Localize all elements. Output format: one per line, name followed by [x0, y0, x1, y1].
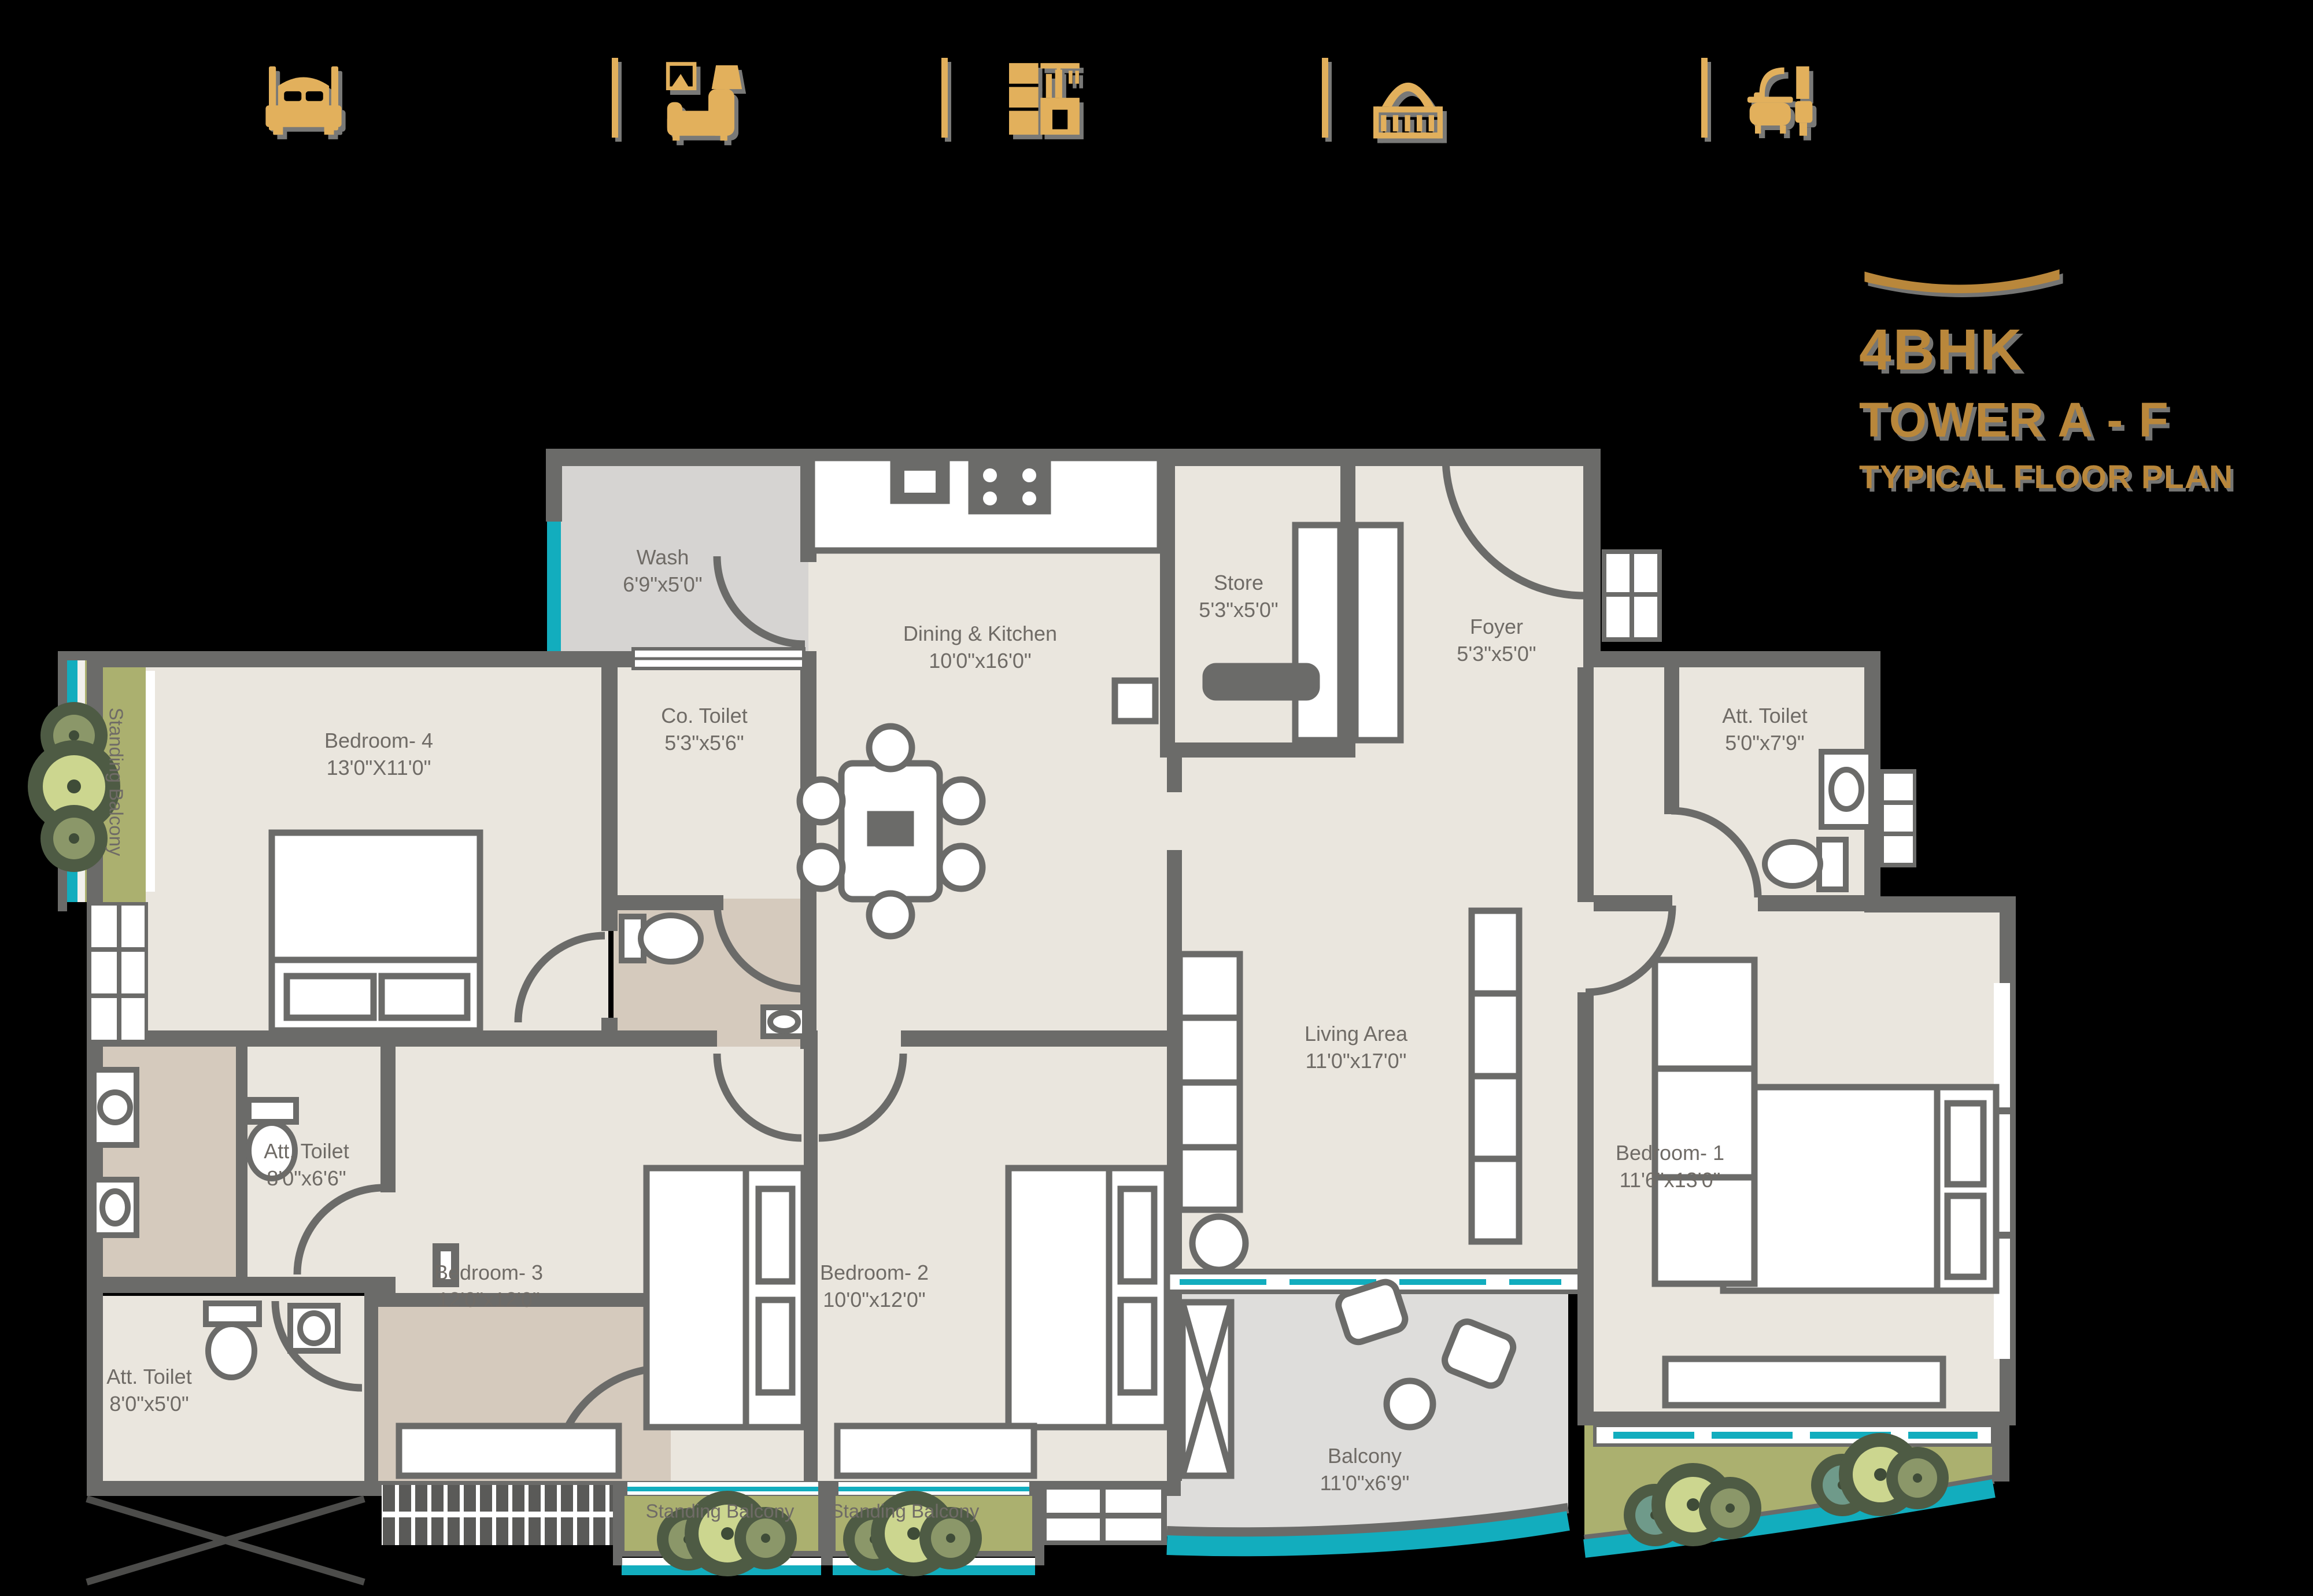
room-label-standing-balcony-2: Standing Balcony: [831, 1499, 980, 1524]
room-label-foyer: Foyer5'3"x5'0": [1457, 614, 1536, 668]
room-label-store: Store5'3"x5'0": [1199, 570, 1278, 624]
room-label-co-toilet: Co. Toilet5'3"x5'6": [661, 703, 747, 757]
room-label-balcony: Balcony11'0"x6'9": [1320, 1443, 1410, 1497]
room-label-att-toilet-bedroom3: Att. Toilet8'0"x6'6": [264, 1138, 349, 1192]
floor-plan: [0, 0, 2313, 1596]
room-label-standing-balcony-1: Standing Balcony: [646, 1499, 795, 1524]
room-label-standing-balcony-left: Standing Balcony: [104, 708, 128, 856]
room-label-bedroom-4: Bedroom- 413'0"X11'0": [324, 727, 433, 782]
room-label-bedroom-1: Bedroom- 111'6"x13'0": [1616, 1140, 1724, 1194]
room-label-living-area: Living Area11'0"x17'0": [1305, 1021, 1407, 1075]
room-label-dining-kitchen: Dining & Kitchen10'0"x16'0": [903, 620, 1057, 675]
room-label-bedroom-2: Bedroom- 210'0"x12'0": [820, 1259, 929, 1314]
room-label-wash: Wash6'9"x5'0": [623, 544, 702, 598]
floor-plan-page: 4BHK TOWER A - F TYPICAL FLOOR PLAN: [0, 0, 2313, 1596]
room-label-att-toilet-2: Att. Toilet8'0"x5'0": [106, 1364, 191, 1418]
room-label-bedroom-3: Bedroom- 312'0"x12'0": [434, 1259, 543, 1314]
room-label-att-toilet-bedroom1: Att. Toilet5'0"x7'9": [1722, 703, 1807, 757]
